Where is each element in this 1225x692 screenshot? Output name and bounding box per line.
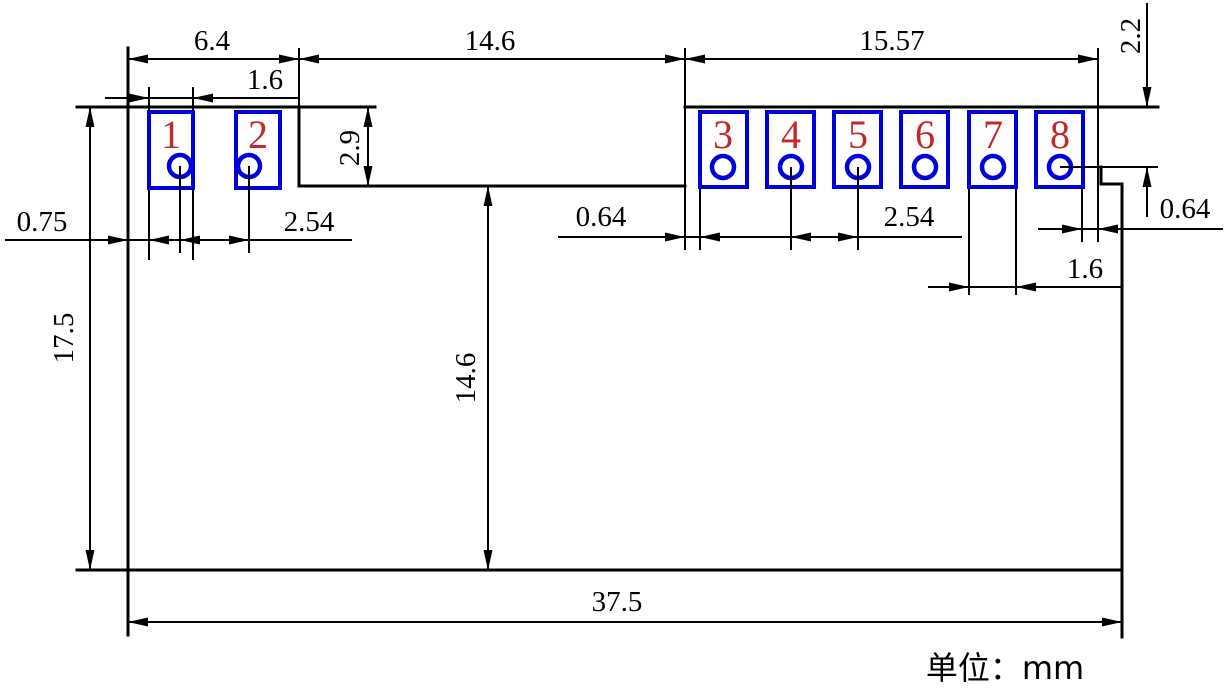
dim-pitch-left: 2.54 bbox=[284, 206, 335, 238]
pad-6-number: 6 bbox=[915, 112, 935, 157]
pad-number-labels: 1 2 3 4 5 6 7 8 bbox=[161, 112, 1070, 157]
dim-pad7-width: 1.6 bbox=[1067, 253, 1103, 285]
pads bbox=[149, 112, 1083, 188]
pad-7-hole bbox=[982, 156, 1004, 178]
pad-3-number: 3 bbox=[713, 112, 733, 157]
dim-edge-to-pad3: 0.64 bbox=[576, 201, 627, 233]
units-note: 单位：mm bbox=[926, 649, 1084, 687]
pad-8-number: 8 bbox=[1050, 112, 1070, 157]
dimension-lines bbox=[5, 3, 1223, 622]
dim-edge-to-pad1: 0.75 bbox=[17, 206, 68, 238]
pad-6-hole bbox=[914, 156, 936, 178]
dim-notch-depth: 14.6 bbox=[450, 353, 482, 404]
dim-pad8-hole-offset: 0.64 bbox=[1160, 193, 1211, 225]
pad-1-number: 1 bbox=[161, 112, 181, 157]
pad-2-number: 2 bbox=[248, 112, 268, 157]
dim-top-span-middle: 14.6 bbox=[465, 25, 516, 57]
dim-top-span-right: 15.57 bbox=[859, 25, 924, 57]
dim-total-width: 37.5 bbox=[592, 586, 643, 618]
pad-4-number: 4 bbox=[781, 112, 801, 157]
dim-pitch-right: 2.54 bbox=[884, 201, 935, 233]
pad-5-number: 5 bbox=[848, 112, 868, 157]
pad-3-hole bbox=[712, 156, 734, 178]
dim-pad1-width: 1.6 bbox=[247, 64, 283, 96]
pcb-dimension-drawing: 6.4 14.6 15.57 1.6 0.75 2.54 0.64 2.54 0… bbox=[0, 0, 1225, 692]
dim-body-height: 17.5 bbox=[48, 313, 80, 364]
dim-top-edge-to-hole-row: 2.2 bbox=[1115, 18, 1147, 54]
drawing-canvas: 6.4 14.6 15.57 1.6 0.75 2.54 0.64 2.54 0… bbox=[0, 0, 1225, 692]
pad-7-number: 7 bbox=[983, 112, 1003, 157]
dim-top-span-left: 6.4 bbox=[194, 25, 231, 57]
dim-pad-height: 2.9 bbox=[334, 130, 366, 166]
